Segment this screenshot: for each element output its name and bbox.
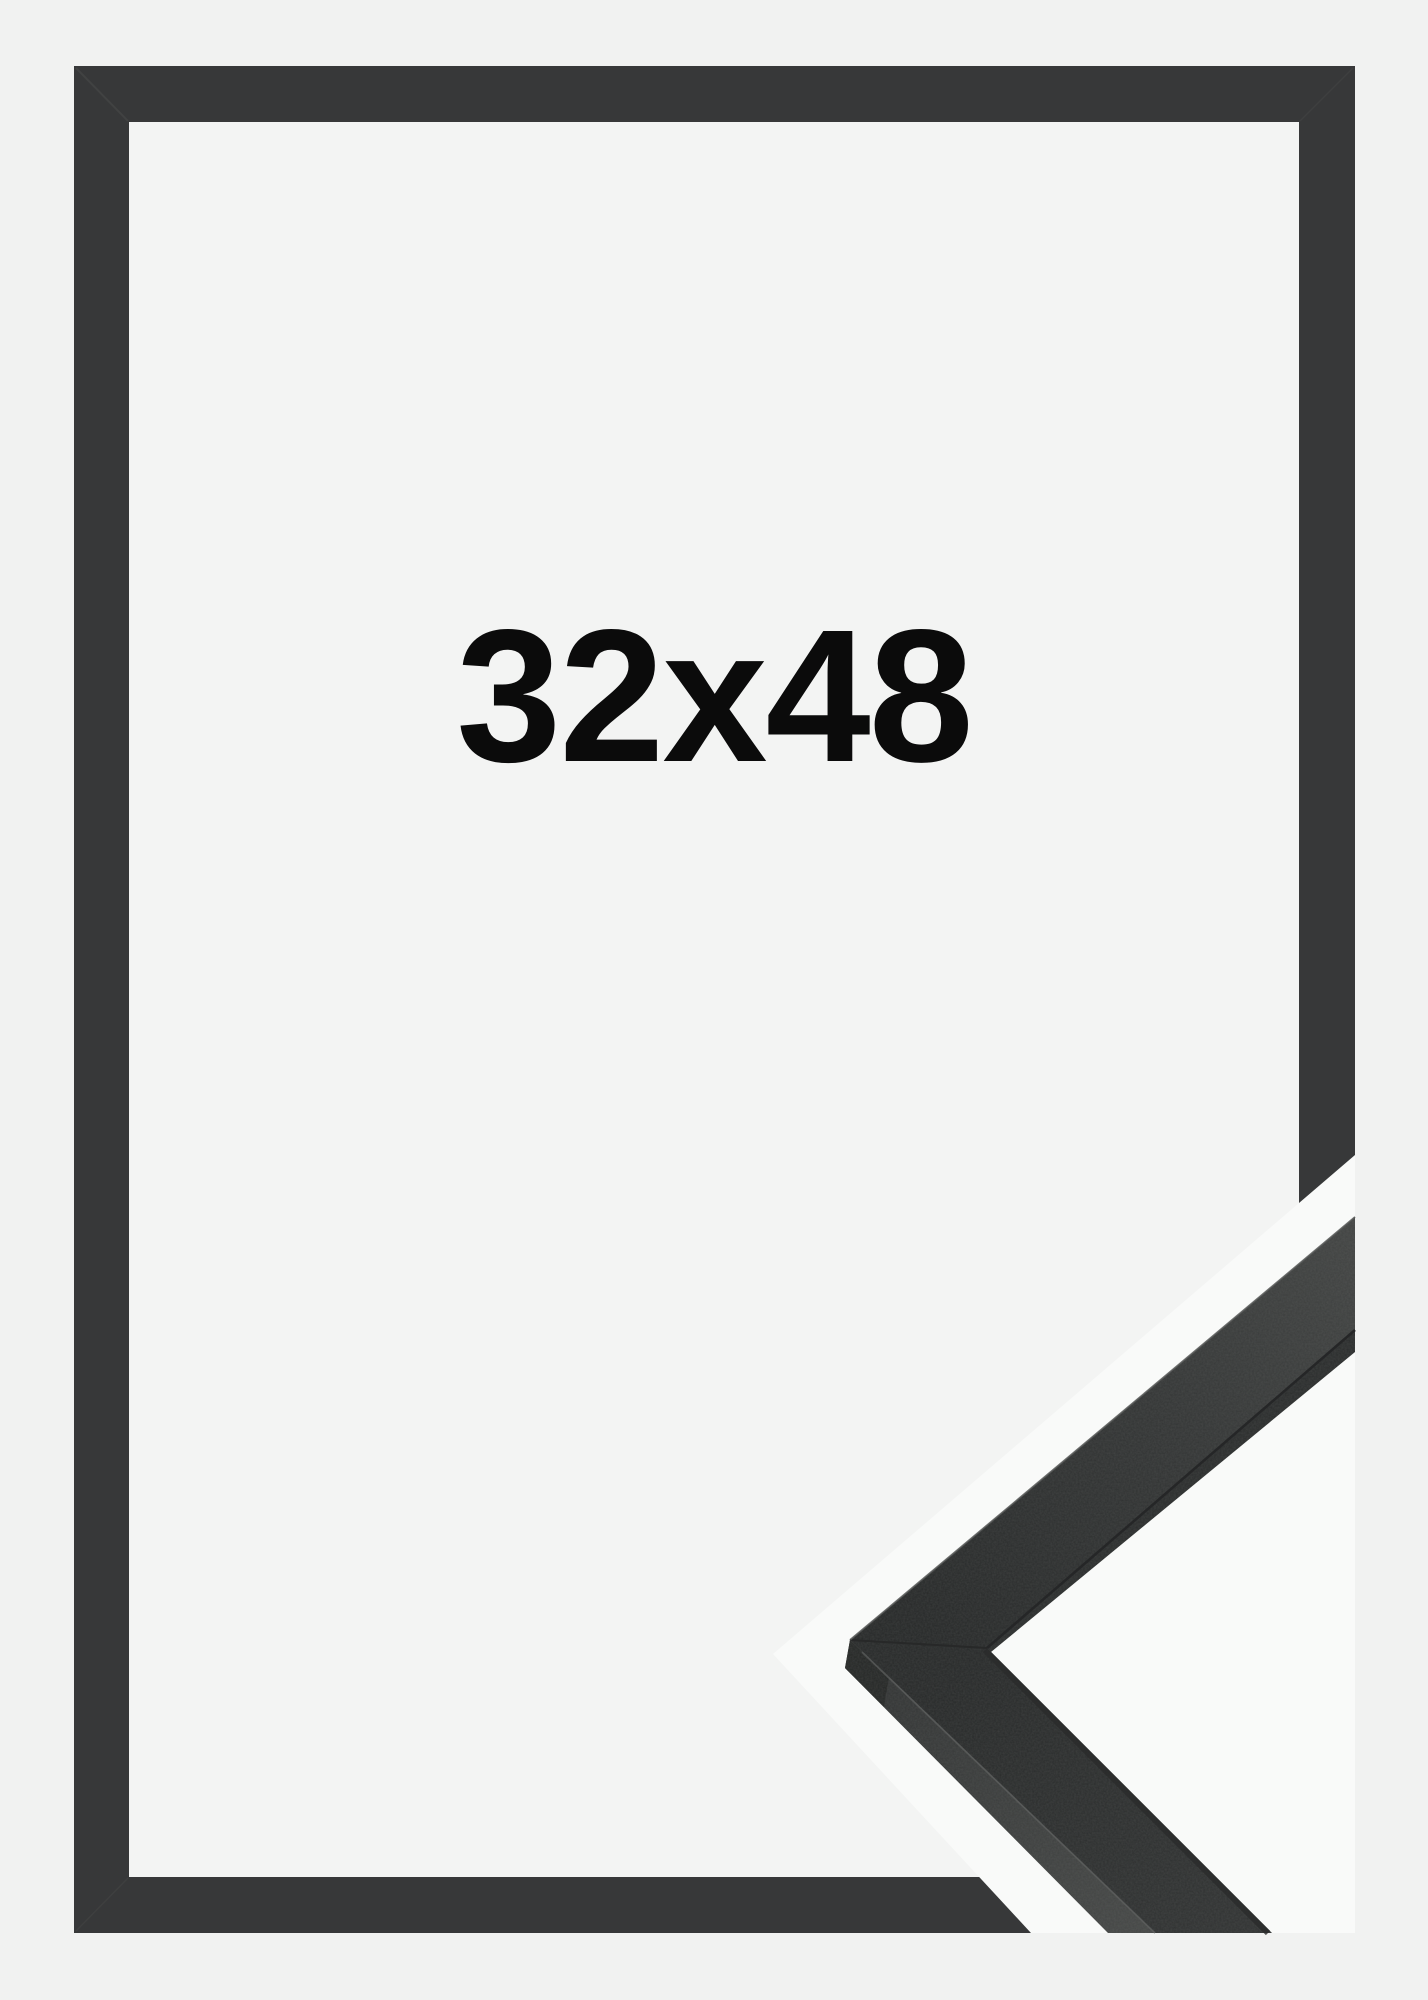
- svg-text:32x48: 32x48: [456, 591, 972, 802]
